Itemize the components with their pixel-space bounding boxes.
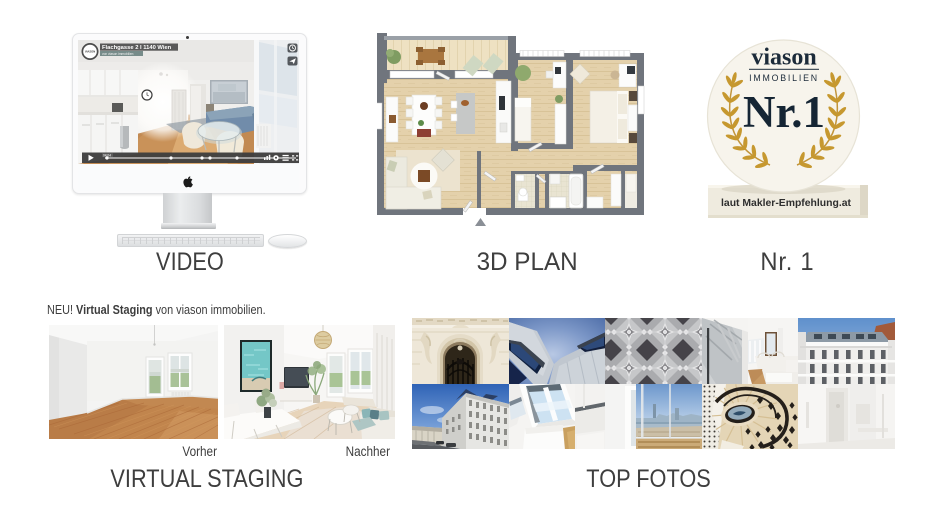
svg-text:von viason immobilien: von viason immobilien: [102, 52, 134, 56]
svg-text:viason: viason: [751, 45, 816, 71]
svg-text:Flachgasse 2 I 1140 Wien: Flachgasse 2 I 1140 Wien: [102, 45, 172, 51]
svg-text:laut Makler-Empfehlung.at: laut Makler-Empfehlung.at: [721, 198, 851, 209]
svg-text:VIASON: VIASON: [85, 50, 95, 54]
svg-text:IMMOBILIEN: IMMOBILIEN: [749, 73, 819, 83]
svg-text:Nr.1: Nr.1: [743, 87, 825, 137]
